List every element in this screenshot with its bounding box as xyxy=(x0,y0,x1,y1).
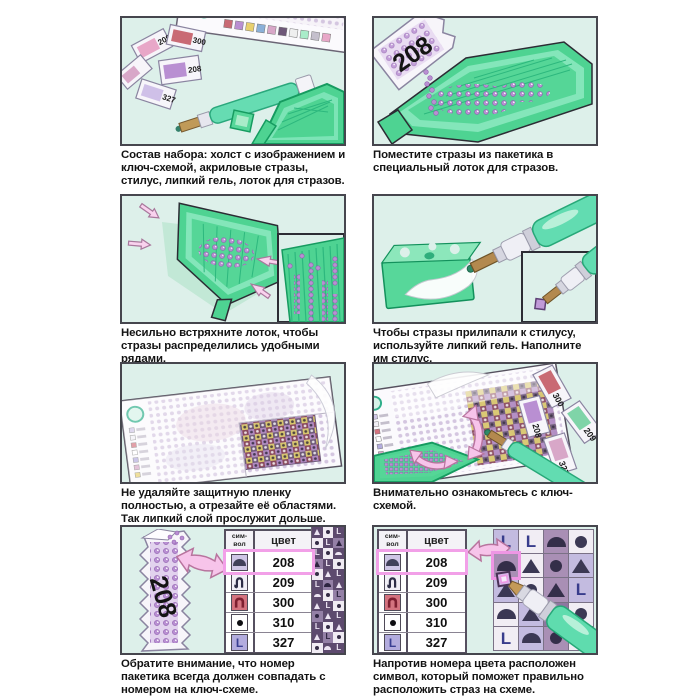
strip-dot-icon xyxy=(337,635,341,639)
step-7-panel: 208 сим- вол цвет 208209300310L327 LLL xyxy=(120,525,346,655)
step-6-illustration: 300 208 209 xyxy=(374,364,596,482)
symbol-swatch: L xyxy=(384,634,401,651)
caption-step-1: Состав набора: холст с изображением и кл… xyxy=(121,149,346,189)
step-1-illustration: 209 300 208 xyxy=(122,18,344,144)
pattern-L-icon: L xyxy=(526,533,536,550)
pattern-strip: LLLLLLLLLLLL xyxy=(311,527,344,653)
step-5: Не удаляйте защитную пленку полностью, а… xyxy=(120,362,346,525)
strip-cell xyxy=(312,527,323,538)
strip-tri-icon xyxy=(325,613,331,619)
stylus xyxy=(450,561,598,653)
caption-step-5: Не удаляйте защитную пленку полностью, а… xyxy=(121,487,346,527)
canvas-sheet xyxy=(122,373,342,482)
symbol-swatch: L xyxy=(231,634,248,651)
symbol-dome-icon xyxy=(386,559,399,566)
caption-step-4: Чтобы стразы прилипали к стилусу, исполь… xyxy=(373,327,598,367)
strip-cell: L xyxy=(323,632,334,643)
symbol-column-header: сим- вол xyxy=(379,531,408,550)
symbol-cell xyxy=(226,593,255,612)
instruction-sheet: 209 300 208 xyxy=(0,0,700,700)
strip-dot-icon xyxy=(315,572,319,576)
symbol-swatch xyxy=(231,594,248,611)
strip-cell xyxy=(323,611,334,622)
strip-cell: L xyxy=(333,611,344,622)
caption-step-8: Напротив номера цвета расположен символ,… xyxy=(373,658,598,698)
symbol-cell xyxy=(379,552,408,572)
strip-cell xyxy=(333,538,344,549)
strip-tri-icon xyxy=(314,603,320,609)
symbol-swatch xyxy=(231,614,248,631)
closeup-inset xyxy=(278,234,344,322)
strip-dot-icon xyxy=(315,646,319,650)
strip-L-icon: L xyxy=(326,560,331,568)
step-7: 208 сим- вол цвет 208209300310L327 LLL xyxy=(120,525,346,698)
strip-cell xyxy=(312,643,323,654)
strip-cell xyxy=(323,643,334,654)
sticky-exposed-area xyxy=(239,414,321,469)
strip-L-icon: L xyxy=(336,591,341,599)
strip-cell xyxy=(323,527,334,538)
step-3-illustration xyxy=(122,196,344,322)
color-code-cell: 209 xyxy=(255,573,312,592)
step-2-illustration: 208 xyxy=(374,18,596,144)
caption-step-7: Обратите внимание, что номер пакетика вс… xyxy=(121,658,346,698)
caption-step-2: Поместите стразы из пакетика в специальн… xyxy=(373,149,598,175)
symbol-column-header: сим- вол xyxy=(226,531,255,550)
symbol-cell: L xyxy=(379,633,408,652)
strip-dot-icon xyxy=(326,551,330,555)
color-code-cell: 327 xyxy=(255,633,312,652)
step-1-panel: 209 300 208 xyxy=(120,16,346,146)
symbol-arch-icon xyxy=(386,596,399,609)
color-code-cell: 208 xyxy=(255,552,312,572)
strip-cell xyxy=(333,601,344,612)
symbol-swatch xyxy=(384,574,401,591)
symbol-hook-icon xyxy=(386,576,399,589)
strip-L-icon: L xyxy=(315,581,320,589)
step-2-panel: 208 xyxy=(372,16,598,146)
strip-cell xyxy=(312,590,323,601)
symbol-letter-icon: L xyxy=(389,637,396,649)
color-key-table: сим- вол цвет 208209300310L327 xyxy=(224,529,314,654)
strip-cell: L xyxy=(333,569,344,580)
symbol-swatch xyxy=(384,554,401,571)
symbol-arch-icon xyxy=(233,596,246,609)
strip-dot-icon xyxy=(326,593,330,597)
step-4-illustration xyxy=(374,196,596,322)
strip-cell xyxy=(312,559,323,570)
strip-tri-icon xyxy=(336,582,342,588)
strip-dot-icon xyxy=(315,541,319,545)
step-4: Чтобы стразы прилипали к стилусу, исполь… xyxy=(372,194,598,362)
color-table-row: 208 xyxy=(226,552,312,572)
step-6: 300 208 209 xyxy=(372,362,598,525)
strip-L-icon: L xyxy=(326,602,331,610)
pattern-cell xyxy=(569,530,593,553)
glue-gel xyxy=(230,110,253,132)
strip-L-icon: L xyxy=(336,612,341,620)
symbol-cell xyxy=(226,552,255,572)
strip-cell: L xyxy=(312,622,323,633)
strip-cell xyxy=(323,548,334,559)
color-code-cell: 300 xyxy=(255,593,312,612)
color-code-cell: 310 xyxy=(255,613,312,632)
strip-cell xyxy=(323,569,334,580)
pattern-dot-icon xyxy=(575,536,587,548)
strip-dome-icon xyxy=(324,646,331,650)
color-table-row: 209 xyxy=(226,572,312,592)
symbol-swatch xyxy=(231,574,248,591)
strip-cell xyxy=(333,622,344,633)
strip-cell xyxy=(323,622,334,633)
packet-label: 208 xyxy=(188,64,203,75)
pattern-dome-icon xyxy=(547,537,566,547)
steps-grid: 209 300 208 xyxy=(120,0,700,698)
symbol-cell xyxy=(379,613,408,632)
symbol-dome-icon xyxy=(233,559,246,566)
strip-cell xyxy=(323,580,334,591)
symbol-swatch xyxy=(384,614,401,631)
strip-cell: L xyxy=(323,538,334,549)
strip-tri-icon xyxy=(314,529,320,535)
color-table-row: L327 xyxy=(226,632,312,652)
symbol-letter-icon: L xyxy=(236,637,243,649)
color-column-header: цвет xyxy=(408,531,465,550)
strip-cell xyxy=(333,580,344,591)
symbol-cell xyxy=(226,573,255,592)
step-8-panel: сим- вол цвет 208209300310L327 LLLLL xyxy=(372,525,598,655)
strip-cell: L xyxy=(333,643,344,654)
strip-tri-icon xyxy=(314,561,320,567)
strip-cell xyxy=(312,611,323,622)
strip-dome-icon xyxy=(335,552,342,556)
strip-cell: L xyxy=(312,580,323,591)
strip-dome-icon xyxy=(324,583,331,587)
strip-cell: L xyxy=(333,527,344,538)
step-3: Несильно встряхните лоток, чтобы стразы … xyxy=(120,194,346,362)
strip-cell xyxy=(333,548,344,559)
strip-tri-icon xyxy=(314,634,320,640)
strip-L-icon: L xyxy=(336,644,341,652)
strip-cell xyxy=(312,569,323,580)
step-5-illustration xyxy=(122,364,344,482)
strip-cell xyxy=(333,632,344,643)
step-6-panel: 300 208 209 xyxy=(372,362,598,484)
strip-cell: L xyxy=(323,601,334,612)
symbol-swatch xyxy=(231,554,248,571)
symbol-cell: L xyxy=(226,633,255,652)
color-key-header: сим- вол цвет xyxy=(379,531,465,552)
step-4-panel xyxy=(372,194,598,324)
step-3-panel xyxy=(120,194,346,324)
strip-tri-icon xyxy=(336,624,342,630)
strip-L-icon: L xyxy=(326,539,331,547)
step-8: сим- вол цвет 208209300310L327 LLLLL xyxy=(372,525,598,698)
color-table-row: 310 xyxy=(226,612,312,632)
symbol-dot-icon xyxy=(390,620,396,626)
strip-dot-icon xyxy=(326,625,330,629)
match-arrow-icon xyxy=(174,543,230,583)
strip-dot-icon xyxy=(337,562,341,566)
strip-L-icon: L xyxy=(315,623,320,631)
color-table-row: 300 xyxy=(226,592,312,612)
strip-cell xyxy=(323,590,334,601)
symbol-dot-icon xyxy=(237,620,243,626)
strip-cell xyxy=(333,559,344,570)
step-5-panel xyxy=(120,362,346,484)
pattern-cell xyxy=(544,530,568,553)
strip-dot-icon xyxy=(315,614,319,618)
color-key-header: сим- вол цвет xyxy=(226,531,312,552)
bead-packets: 209 300 208 xyxy=(122,24,209,109)
strip-tri-icon xyxy=(336,540,342,546)
symbol-cell xyxy=(226,613,255,632)
strip-cell xyxy=(312,538,323,549)
symbol-hook-icon xyxy=(233,576,246,589)
step-2: 208 Поместите стразы из пакетика в специ… xyxy=(372,16,598,194)
strip-cell: L xyxy=(312,548,323,559)
strip-cell xyxy=(312,632,323,643)
symbol-cell xyxy=(379,593,408,612)
symbol-cell xyxy=(379,573,408,592)
strip-L-icon: L xyxy=(326,633,331,641)
strip-tri-icon xyxy=(325,571,331,577)
strip-dot-icon xyxy=(326,530,330,534)
strip-dot-icon xyxy=(337,604,341,608)
step-1: 209 300 208 xyxy=(120,16,346,194)
strip-cell xyxy=(312,601,323,612)
strip-dome-icon xyxy=(314,594,321,598)
pattern-cell: L xyxy=(519,530,543,553)
color-key-rows: 208209300310L327 xyxy=(226,552,312,652)
caption-step-3: Несильно встряхните лоток, чтобы стразы … xyxy=(121,327,346,367)
strip-L-icon: L xyxy=(336,528,341,536)
color-column-header: цвет xyxy=(255,531,312,550)
strip-cell: L xyxy=(323,559,334,570)
strip-L-icon: L xyxy=(315,549,320,557)
strip-cell: L xyxy=(333,590,344,601)
strip-L-icon: L xyxy=(336,570,341,578)
symbol-swatch xyxy=(384,594,401,611)
caption-step-6: Внимательно ознакомьтесь с ключ-схемой. xyxy=(373,487,598,513)
